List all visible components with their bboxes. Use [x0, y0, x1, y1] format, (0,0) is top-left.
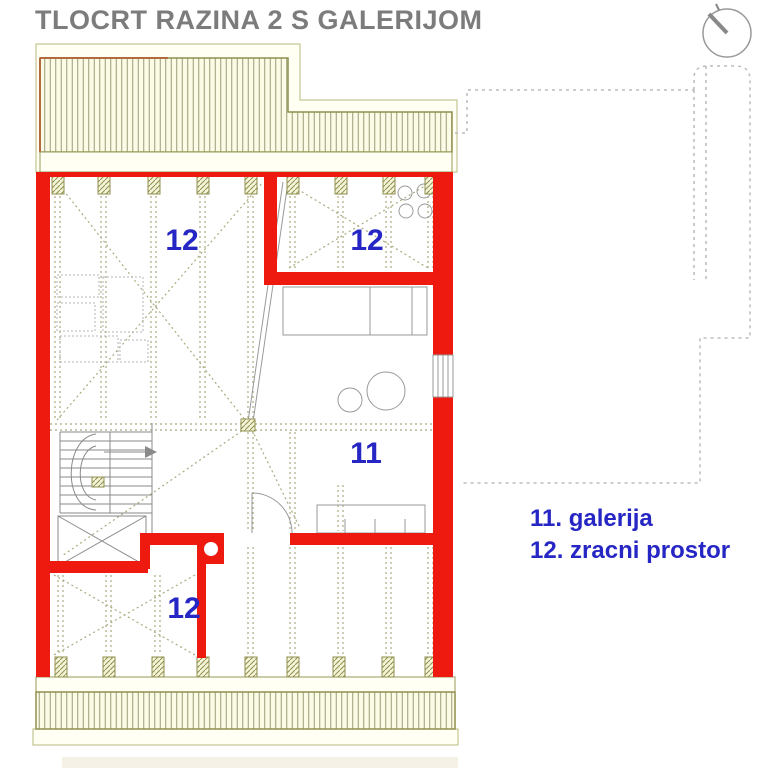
floor-plan-drawing: 12 12 11 12: [0, 0, 768, 768]
floor-plan-page: TLOCRT RAZINA 2 S GALERIJOM: [0, 0, 768, 768]
wall-gallery-step-3: [50, 561, 148, 573]
lower-floor-outline: [455, 66, 750, 483]
legend-item-zracni-prostor: 12. zracni prostor: [530, 535, 730, 567]
legend: 11. galerija 12. zracni prostor: [530, 503, 730, 567]
counter-below: [317, 505, 425, 533]
wall-right-upper: [433, 172, 453, 357]
stair-newel-post: [92, 477, 104, 487]
room-label-12-top-left: 12: [165, 224, 198, 257]
room-label-12-bottom: 12: [167, 592, 200, 625]
furniture-below-void: [57, 275, 148, 362]
gallery-counter: [283, 287, 427, 335]
room-label-12-top-right: 12: [350, 224, 383, 257]
wall-left: [36, 172, 50, 677]
stove-burner: [418, 204, 432, 218]
room-label-11-gallery: 11: [350, 437, 382, 470]
lower-slab-edge: [62, 757, 458, 768]
column-circle: [204, 542, 218, 556]
legend-item-galerija: 11. galerija: [530, 503, 730, 535]
table-small-circle: [338, 388, 362, 412]
north-arrow-icon: [703, 4, 751, 57]
roof-overhang-bottom: [33, 677, 458, 745]
wall-gallery-right: [290, 533, 453, 545]
roof-overhang-top: [36, 44, 457, 172]
window-right-wall: [433, 355, 453, 397]
wall-mid-vertical: [264, 172, 277, 282]
table-large-circle: [367, 372, 405, 410]
stove-burner: [399, 204, 413, 218]
wall-top: [50, 172, 433, 177]
wall-room12-right-bottom: [264, 272, 453, 285]
